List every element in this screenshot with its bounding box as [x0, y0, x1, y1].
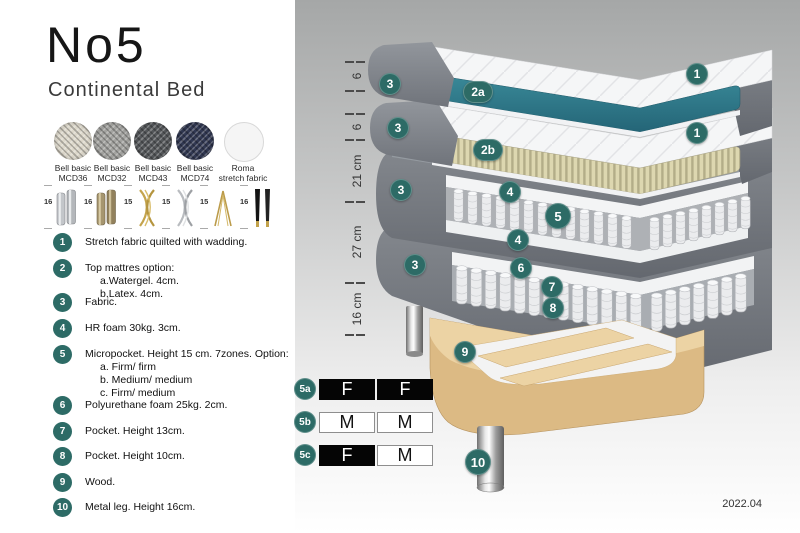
feature-number: 10 [53, 498, 72, 517]
ruler-tick [356, 113, 365, 115]
ruler-tick [345, 282, 354, 284]
gold-hairpin-leg-icon [210, 185, 236, 231]
leg-height-label: 16 [240, 197, 248, 206]
ruler-label: 6 [350, 73, 364, 80]
firmness-cell: M [377, 412, 433, 433]
fabric-swatch [224, 122, 264, 162]
callout-badge: 3 [404, 254, 426, 276]
version-label: 2022.04 [722, 498, 762, 510]
ruler-tick [356, 61, 365, 63]
firmness-cell: F [319, 379, 375, 400]
firmness-cell: F [319, 445, 375, 466]
callout-badge: 3 [387, 117, 409, 139]
feature-number: 8 [53, 447, 72, 466]
callout-badge: 5 [545, 203, 571, 229]
callout-badge: 4 [507, 229, 529, 251]
leg-height-label: 15 [124, 197, 132, 206]
firmness-row: 5c F M [294, 444, 433, 466]
feature-item: 6 Polyurethane foam 25kg. 2cm. [53, 396, 227, 415]
product-title: No5 [46, 16, 147, 74]
callout-badge: 4 [499, 181, 521, 203]
fabric-swatch [93, 122, 131, 160]
firmness-cell: F [377, 379, 433, 400]
ruler-tick [345, 334, 354, 336]
leg-option: 15 [162, 184, 202, 232]
ruler-label: 21 cm [350, 155, 364, 188]
ruler-tick [356, 282, 365, 284]
feature-number: 6 [53, 396, 72, 415]
silver-cross-leg-icon [172, 185, 198, 231]
ruler-label: 16 cm [350, 293, 364, 326]
feature-item: 9 Wood. [53, 473, 115, 492]
firmness-cell: M [377, 445, 433, 466]
fabric-swatch-label: Romastretch fabric [215, 163, 271, 183]
callout-badge: 6 [510, 257, 532, 279]
callout-badge: 10 [465, 449, 491, 475]
feature-item: 5 Micropocket. Height 15 cm. 7zones. Opt… [53, 345, 289, 400]
leg-option: 16 [240, 184, 280, 232]
callout-badge: 8 [542, 297, 564, 319]
leg-height-label: 16 [44, 197, 52, 206]
callout-badge: 1 [686, 63, 708, 85]
firmness-row: 5a F F [294, 378, 433, 400]
callout-badge: 3 [390, 179, 412, 201]
ruler-tick [356, 90, 365, 92]
chrome-cylinder-leg-icon [54, 185, 80, 231]
feature-number: 1 [53, 233, 72, 252]
callout-badge: 7 [541, 276, 563, 298]
firmness-row-label: 5c [294, 444, 316, 466]
spec-sheet: 6 6 21 cm 27 cm 16 cm 3 2a 1 3 2b 1 4 5 … [0, 0, 800, 533]
leg-option: 16 [84, 184, 124, 232]
feature-number: 3 [53, 293, 72, 312]
leg-height-label: 15 [162, 197, 170, 206]
black-gold-tip-leg-icon [250, 185, 276, 231]
ruler-label: 6 [350, 124, 364, 131]
ruler-tick [356, 201, 365, 203]
feature-number: 7 [53, 422, 72, 441]
callout-badge: 3 [379, 73, 401, 95]
callout-badge: 2a [463, 81, 493, 103]
gold-cross-leg-icon [134, 185, 160, 231]
bronze-cylinder-leg-icon [94, 185, 120, 231]
leg-option: 16 [44, 184, 84, 232]
firmness-cell: M [319, 412, 375, 433]
feature-item: 8 Pocket. Height 10cm. [53, 447, 185, 466]
ruler-label: 27 cm [350, 226, 364, 259]
callout-badge: 2b [473, 139, 503, 161]
fabric-swatch [176, 122, 214, 160]
feature-item: 4 HR foam 30kg. 3cm. [53, 319, 181, 338]
ruler-tick [345, 113, 354, 115]
ruler-tick [345, 61, 354, 63]
feature-number: 2 [53, 259, 72, 278]
feature-number: 4 [53, 319, 72, 338]
ruler-tick [345, 90, 354, 92]
feature-item: 3 Fabric. [53, 293, 117, 312]
ruler-tick [345, 139, 354, 141]
fabric-swatch [54, 122, 92, 160]
feature-item: 7 Pocket. Height 13cm. [53, 422, 185, 441]
callout-badge: 1 [686, 122, 708, 144]
leg-option: 15 [124, 184, 164, 232]
fabric-swatch [134, 122, 172, 160]
feature-item: 1 Stretch fabric quilted with wadding. [53, 233, 247, 252]
product-subtitle: Continental Bed [48, 79, 205, 102]
callout-badge: 9 [454, 341, 476, 363]
feature-item: 10 Metal leg. Height 16cm. [53, 498, 195, 517]
leg-height-label: 15 [200, 197, 208, 206]
leg-option: 15 [200, 184, 240, 232]
ruler-tick [356, 139, 365, 141]
firmness-row: 5b M M [294, 411, 433, 433]
feature-number: 5 [53, 345, 72, 364]
leg-height-label: 16 [84, 197, 92, 206]
feature-number: 9 [53, 473, 72, 492]
ruler-tick [356, 334, 365, 336]
ruler-tick [345, 201, 354, 203]
firmness-row-label: 5a [294, 378, 316, 400]
firmness-row-label: 5b [294, 411, 316, 433]
